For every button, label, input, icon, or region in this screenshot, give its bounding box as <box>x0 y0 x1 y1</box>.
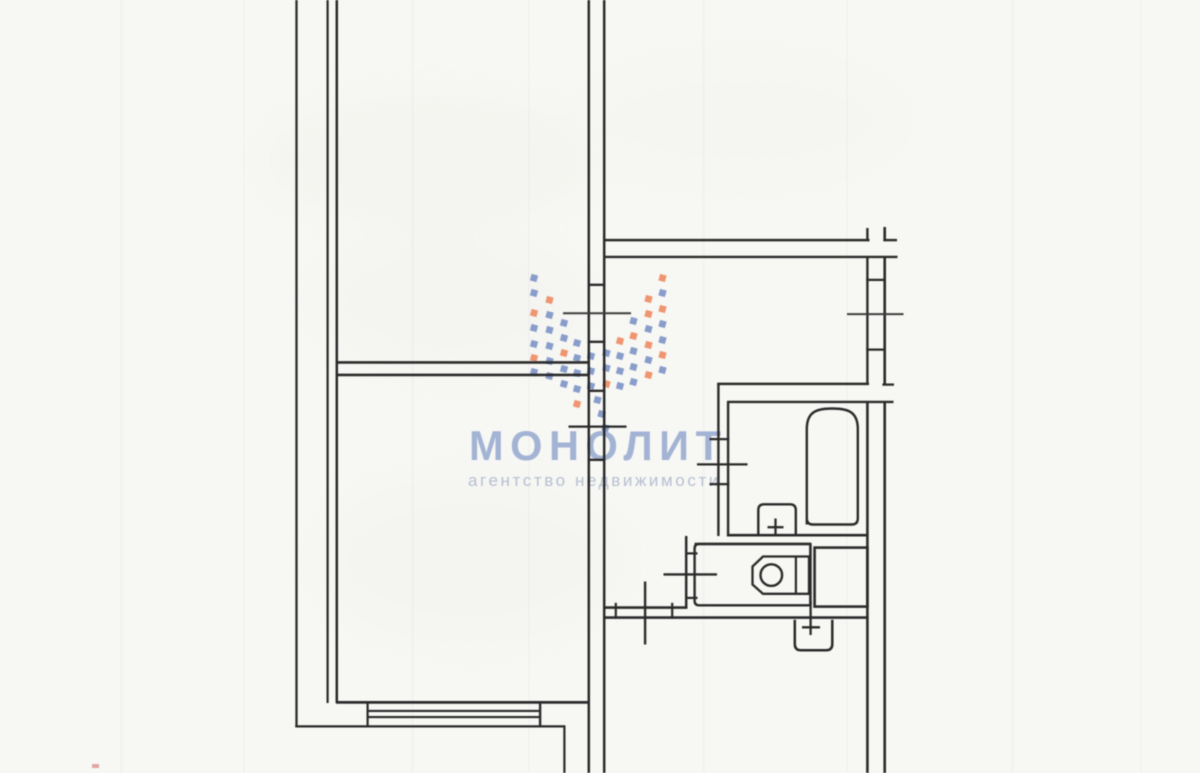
svg-text:МОНОЛИТ: МОНОЛИТ <box>469 422 728 469</box>
svg-text:агентство недвижимости: агентство недвижимости <box>468 471 721 490</box>
